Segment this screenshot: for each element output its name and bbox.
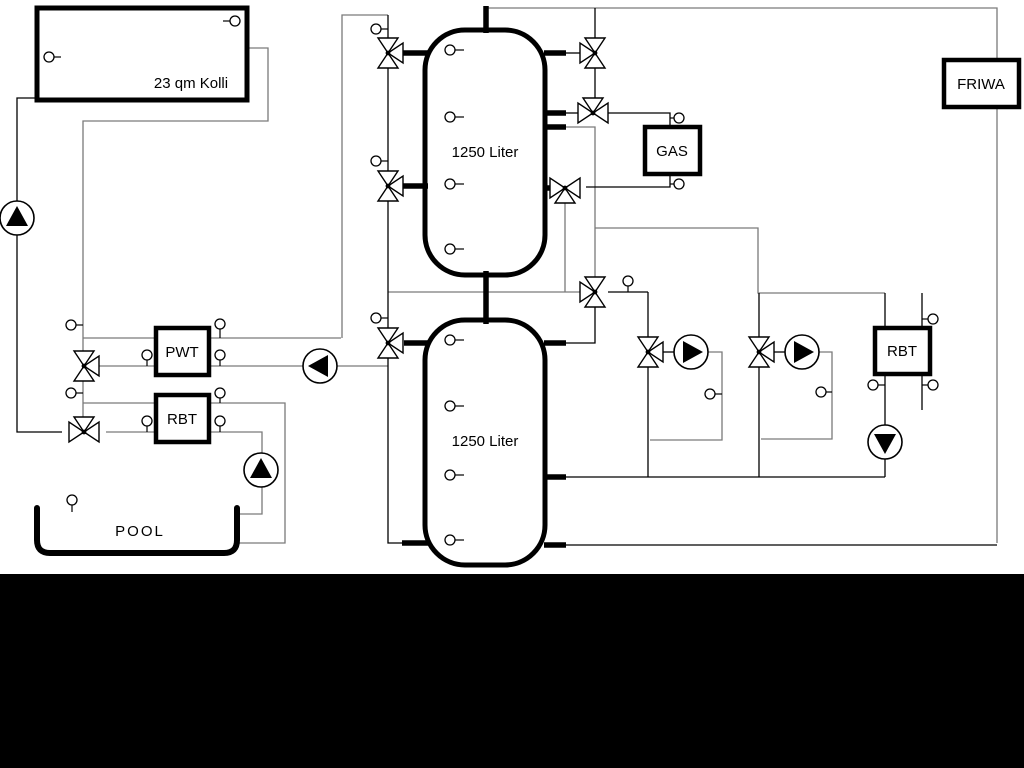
collector-sensor-right [230, 16, 240, 26]
solar-supply-line [17, 98, 62, 432]
buffer-tank-2-label: 1250 Liter [452, 433, 519, 450]
heating1-loop-sensor [705, 389, 715, 399]
heating2-loop-sensor [816, 387, 826, 397]
valve-tank1-top-left-center [386, 51, 391, 56]
tank2-sensor-3 [445, 470, 455, 480]
hydraulic-schematic: 23 qm KolliPWTRBTGASFRIWARBT1250 Liter12… [0, 0, 1024, 768]
valve-mixing-center-center [593, 290, 598, 295]
mixing-to-tank2-line [546, 307, 595, 343]
main-top-friwa-line [486, 8, 997, 543]
gas-return-sensor [674, 179, 684, 189]
gas-supply-sensor [674, 113, 684, 123]
valve-solar-pool-center [82, 430, 87, 435]
tank1-sensor-3 [445, 179, 455, 189]
tank1-sensor-1 [445, 45, 455, 55]
rbt2-secondary-sensor-bottom [928, 380, 938, 390]
valve-gas-return-center [563, 186, 568, 191]
tank-left-riser-line [388, 15, 404, 543]
pwt-box-label: PWT [165, 344, 198, 361]
valve-heating-circuit-1-center [646, 350, 651, 355]
collector-box-label: 23 qm Kolli [154, 75, 228, 92]
valve-tank1-top-right-center [593, 51, 598, 56]
valve-tank1-mid-left-center [386, 184, 391, 189]
mixing-line-sensor [623, 276, 633, 286]
tank2-sensor-2 [445, 401, 455, 411]
rbt-right-box-label: RBT [887, 343, 917, 360]
buffer-tank-1-label: 1250 Liter [452, 144, 519, 161]
gas-boiler-box-label: GAS [656, 143, 688, 160]
pwt-top-sensor-right [215, 319, 225, 329]
collector-sensor-left [44, 52, 54, 62]
tank1-sensor-2 [445, 112, 455, 122]
heating-branch-line [595, 228, 885, 293]
rbt-bottom-sensor-left [142, 416, 152, 426]
riser-sensor-top [371, 24, 381, 34]
valve-gas-supply-center [591, 111, 596, 116]
rbt2-secondary-sensor-top [928, 314, 938, 324]
rbt-left-box-label: RBT [167, 411, 197, 428]
tank2-sensor-1 [445, 335, 455, 345]
rbt-bottom-sensor-right [215, 416, 225, 426]
pwt-bottom-sensor-left [142, 350, 152, 360]
pwt-bottom-sensor-right [215, 350, 225, 360]
valve-heating-circuit-2-center [757, 350, 762, 355]
rbt2-return-sensor [868, 380, 878, 390]
solar-line-sensor-2 [66, 388, 76, 398]
rbt-top-sensor-right [215, 388, 225, 398]
schematic-canvas: 23 qm KolliPWTRBTGASFRIWARBT1250 Liter12… [0, 0, 1024, 768]
friwa-box-label: FRIWA [957, 76, 1005, 93]
pool-sensor [67, 495, 77, 505]
solar-line-sensor-1 [66, 320, 76, 330]
rbt-bottom-pool-line [106, 432, 262, 514]
tank1-sensor-4 [445, 244, 455, 254]
pool-basin-label: POOL [115, 523, 165, 540]
valve-tank2-top-left-center [386, 341, 391, 346]
riser-sensor-mid [371, 156, 381, 166]
valve-solar-pwt-center [82, 364, 87, 369]
tank2-sensor-4 [445, 535, 455, 545]
riser-sensor-low [371, 313, 381, 323]
bottom-black-bar [0, 574, 1024, 768]
